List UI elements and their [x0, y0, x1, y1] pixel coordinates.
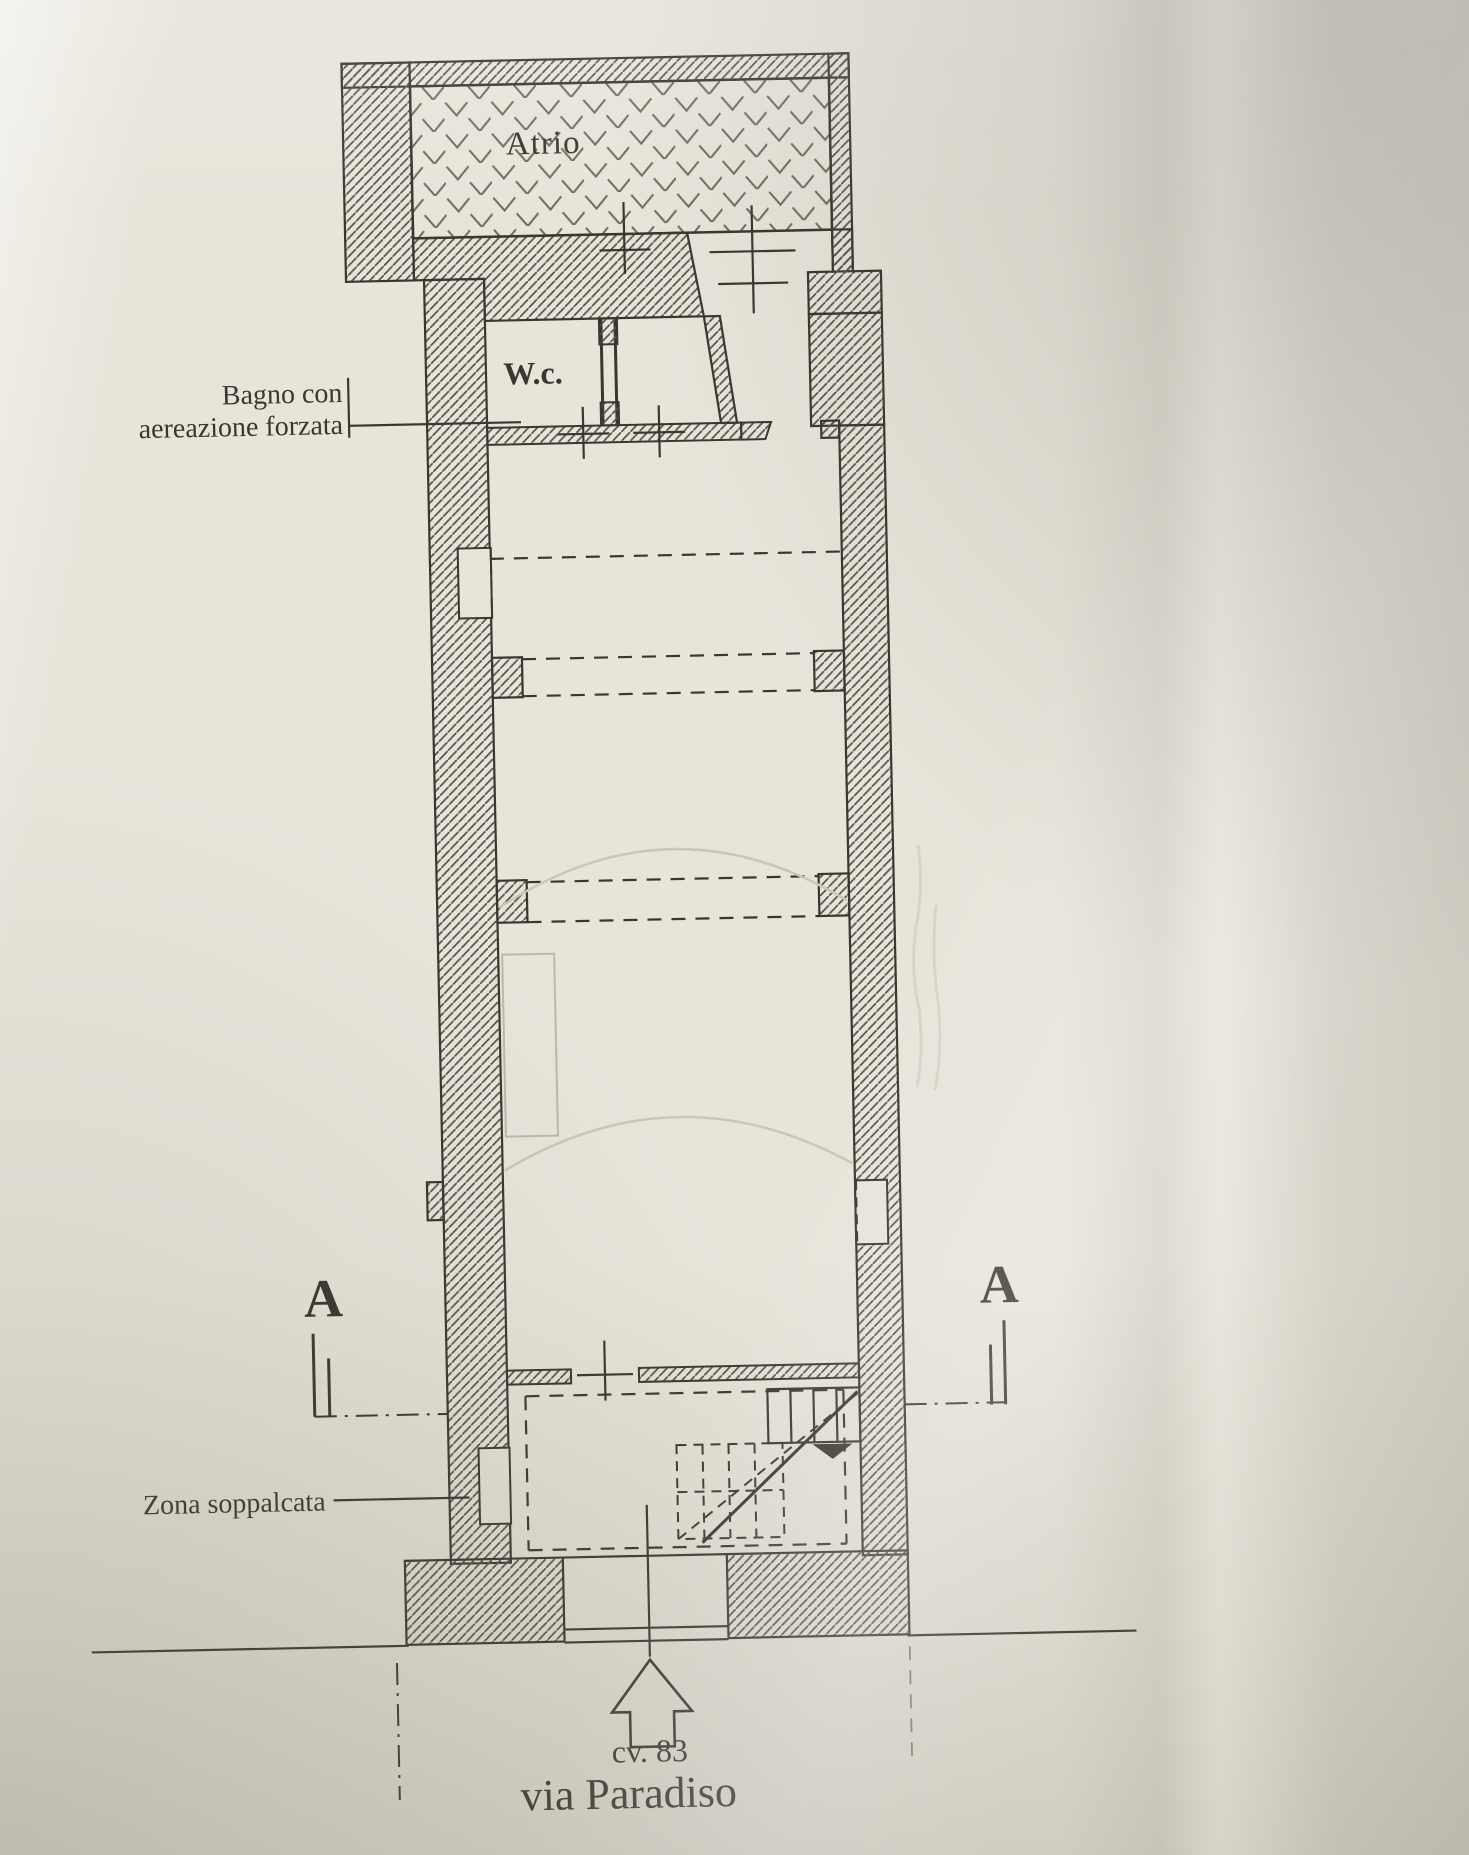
- section-cut-line-right-2: [990, 1345, 991, 1405]
- wc-door-cross: [557, 433, 609, 434]
- wc-partition-nub-top: [599, 318, 618, 344]
- street-edge-line-right: [908, 1631, 1137, 1636]
- wall-pier-right-1: [814, 650, 845, 691]
- street-edge-line-left: [92, 1646, 409, 1653]
- zona-note: Zona soppalcata: [143, 1487, 327, 1522]
- left-wall-outer-notch: [427, 1182, 444, 1220]
- bleed-through-marks: [914, 845, 940, 1090]
- faint-arch-lower: [504, 1113, 853, 1170]
- faint-construction-marks: [498, 845, 853, 1170]
- entrance-arrow-stem: [647, 1505, 650, 1657]
- mezzanine-door-tick: [604, 1341, 605, 1401]
- entrance-area: cv. 83 via Paradiso: [89, 1495, 1140, 1830]
- zona-annotation: Zona soppalcata: [143, 1484, 470, 1522]
- bagno-note-line2: aereazione forzata: [138, 410, 344, 445]
- street-name-label: via Paradiso: [520, 1767, 737, 1821]
- wc-label: W.c.: [503, 354, 563, 391]
- wall-pier-right-2: [819, 873, 850, 916]
- section-marker-right: A: [902, 1254, 1022, 1406]
- stair-arrowhead: [812, 1443, 852, 1459]
- mezzanine-door-cross: [577, 1374, 633, 1375]
- section-trace-left: [315, 1414, 448, 1417]
- civic-number-label: cv. 83: [611, 1732, 688, 1770]
- bagno-leader-bracket: [348, 378, 349, 438]
- passage-right-block: [807, 229, 882, 315]
- section-cut-line-right-1: [1004, 1320, 1006, 1404]
- dashed-line-2a: [522, 653, 814, 659]
- mezzanine-dashed-outline: [525, 1390, 846, 1551]
- atrium-door-tick-cross: [599, 249, 650, 250]
- perimeter-walls: [341, 53, 909, 1646]
- section-cut-line-left-1: [313, 1334, 315, 1417]
- left-wall-niche-upper: [458, 548, 492, 619]
- room2-right-partition: [704, 316, 737, 424]
- atrium-floor-pattern: [410, 78, 832, 239]
- room2-door-cross: [633, 432, 685, 433]
- section-label-right: A: [979, 1254, 1019, 1315]
- passage-door-return: [821, 421, 839, 438]
- paper-sheet: Atrio W.c.: [0, 0, 1469, 1855]
- wc-partition-nub-bottom: [601, 402, 619, 425]
- stair-riser-1: [790, 1389, 791, 1443]
- atrium-left-wall: [341, 62, 414, 281]
- passage-door-cross-1: [709, 250, 795, 252]
- boundary-line-left: [397, 1663, 400, 1800]
- hall-dashed-lines: [490, 551, 850, 922]
- right-wall: [839, 425, 908, 1556]
- dashed-line-2b: [523, 690, 815, 696]
- wall-pier-left-1: [492, 657, 523, 698]
- left-wall-niche-lower: [478, 1448, 511, 1525]
- boundary-line-right: [910, 1646, 912, 1764]
- floor-plan-drawing: Atrio W.c.: [0, 0, 1469, 1855]
- atrium-door-tick: [623, 202, 625, 274]
- bottom-wall-right: [727, 1550, 910, 1638]
- section-marker-left: A: [303, 1266, 448, 1417]
- dashed-line-3a: [527, 876, 819, 882]
- mezzanine-wall-right-segment: [639, 1363, 859, 1382]
- section-label-left: A: [303, 1268, 343, 1329]
- mezzanine-wall-left-segment: [507, 1369, 571, 1384]
- section-cut-line-left-2: [329, 1358, 330, 1416]
- stair-riser-3: [836, 1388, 837, 1442]
- bathroom-floor-wall-nub: [741, 422, 771, 440]
- plan-rotated-group: Atrio W.c.: [59, 48, 1141, 1829]
- entrance-threshold-2: [565, 1639, 729, 1642]
- right-wall-upper: [809, 313, 884, 427]
- right-wall-window-recess: [855, 1180, 888, 1245]
- atrium-label: Atrio: [505, 125, 580, 163]
- bagno-note-line1: Bagno con: [222, 378, 343, 412]
- faint-door-leaf: [502, 954, 558, 1137]
- wall-pier-left-2: [497, 880, 528, 923]
- dashed-line-1: [490, 551, 842, 558]
- staircase: [675, 1387, 862, 1543]
- entrance-inner-line: [563, 1554, 727, 1557]
- bottom-wall-left: [405, 1558, 565, 1645]
- entrance-threshold-1: [564, 1626, 728, 1629]
- passage-door-cross-2: [718, 283, 788, 284]
- dashed-line-3b: [527, 916, 819, 922]
